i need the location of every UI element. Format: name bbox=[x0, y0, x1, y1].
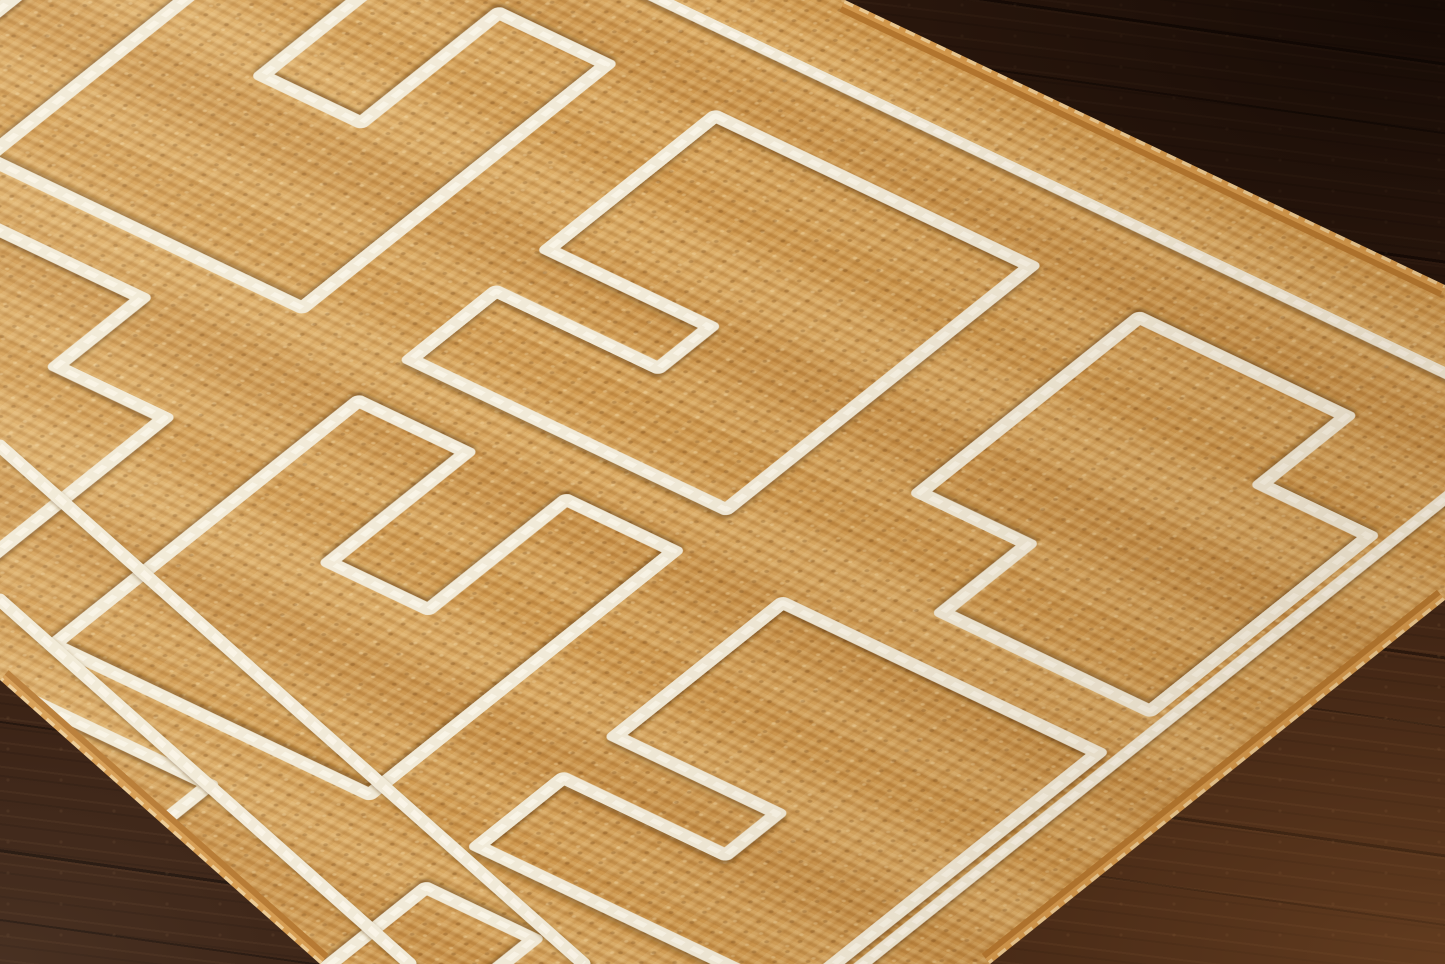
room-scene bbox=[0, 0, 1445, 964]
